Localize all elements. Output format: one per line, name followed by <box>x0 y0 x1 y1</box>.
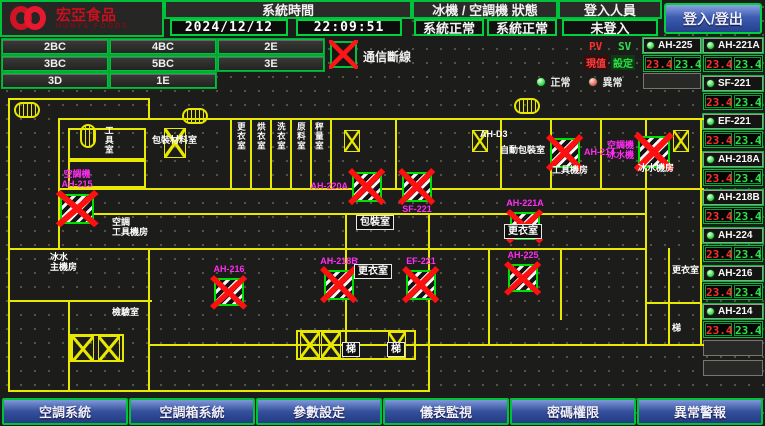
unit-pv-value: 23.4 <box>705 171 732 184</box>
room-label: 冰水機房 <box>638 164 674 174</box>
floor-button-3e[interactable]: 3E <box>218 56 324 71</box>
unit-status-led-icon <box>706 269 715 278</box>
wall-segment <box>700 118 702 346</box>
sv-header: SV <box>618 40 631 53</box>
map-unit-marker-空調機-AH-215[interactable] <box>60 194 94 224</box>
comm-fault-x-icon <box>58 192 96 225</box>
wall-segment <box>250 118 252 190</box>
floor-button-3bc[interactable]: 3BC <box>2 56 108 71</box>
comm-fault-x-icon <box>400 170 433 203</box>
unit-pv-value: 23.4 <box>645 57 672 70</box>
unit-status-led-icon <box>706 307 715 316</box>
wall-segment <box>646 302 702 304</box>
unit-pv-value: 23.4 <box>705 285 732 298</box>
bottom-navigation: 空調系統空調箱系統參數設定儀表監視密碼權限異常警報 <box>0 397 765 426</box>
wall-segment <box>148 344 704 346</box>
unit-sv-value: 23.4 <box>734 133 761 146</box>
system-time-value: 22:09:51 <box>296 19 402 36</box>
hmi-screen: 宏亞食品 HUNYA FOODS 系統時間 2024/12/12 22:09:5… <box>0 0 765 426</box>
comm-fault-x-icon <box>212 277 245 308</box>
comm-fault-legend-label: 通信斷線 <box>363 48 411 65</box>
unit-values-sf-221: 23.423.4 <box>703 93 763 110</box>
map-unit-label: SF-221 <box>388 205 446 215</box>
comm-fault-x-icon <box>506 263 539 294</box>
unit-sv-value: 23.4 <box>734 171 761 184</box>
room-label: 原料室 <box>296 122 305 151</box>
room-label: AH-D3 <box>480 130 508 140</box>
floor-button-1e[interactable]: 1E <box>110 73 216 88</box>
door-x-symbol <box>98 336 120 362</box>
unit-sv-value: 23.4 <box>734 209 761 222</box>
unit-sv-value: 23.4 <box>734 95 761 108</box>
room-label: 洗衣室 <box>276 122 285 151</box>
unit-values-ah-225: 23.423.4 <box>643 55 701 72</box>
unit-row-sf-221[interactable]: SF-221 <box>703 76 763 91</box>
normal-legend: 正常 <box>536 73 570 91</box>
wall-segment <box>8 98 10 392</box>
wall-segment <box>270 118 272 190</box>
unit-pv-value: 23.4 <box>705 95 732 108</box>
unit-sv-value: 23.4 <box>734 57 761 70</box>
room-label: 更衣室 <box>672 266 699 276</box>
unit-values-ah-218b: 23.423.4 <box>703 207 763 224</box>
unit-name-label: AH-214 <box>718 306 752 317</box>
stairs-icon <box>14 102 40 118</box>
unit-pv-value: 23.4 <box>705 57 732 70</box>
map-unit-label: AH-220A <box>310 182 348 192</box>
floor-button-5bc[interactable]: 5BC <box>110 56 216 71</box>
login-status-value: 未登入 <box>562 19 658 36</box>
floor-button-3d[interactable]: 3D <box>2 73 108 88</box>
door-x-symbol <box>344 130 360 152</box>
normal-legend-label: 正常 <box>550 78 570 89</box>
floor-plan-map: 空調機 AH-215AH-220ASF-221AH-214空調機 冰水機AH-2… <box>0 90 702 396</box>
unit-status-led-icon <box>706 193 715 202</box>
pv-name-label: 現值 <box>584 55 608 70</box>
room-label: 梯 <box>672 324 681 334</box>
wall-segment <box>230 118 232 190</box>
room-label: 包裝室 <box>356 215 394 230</box>
unit-pv-value: 23.4 <box>705 133 732 146</box>
wall-segment <box>8 300 152 302</box>
unit-row-ah-224[interactable]: AH-224 <box>703 228 763 243</box>
room-label: 更衣室 <box>236 122 245 151</box>
unit-values-ef-221: 23.423.4 <box>703 131 763 148</box>
wall-segment <box>148 248 150 392</box>
machine-status-label: 冰機 / 空調機 狀態 <box>412 0 558 19</box>
map-unit-marker-AH-218B[interactable] <box>324 270 354 300</box>
unit-name-label: AH-224 <box>718 230 752 241</box>
comm-fault-legend-icon <box>330 41 357 68</box>
map-unit-marker-AH-220A[interactable] <box>352 172 382 202</box>
unit-status-led-icon <box>646 41 655 50</box>
unit-row-ah-225[interactable]: AH-225 <box>643 38 701 53</box>
abnormal-legend-label: 異常 <box>602 78 622 89</box>
room-label: 工具機房 <box>552 166 588 176</box>
abnormal-led-icon <box>588 77 598 87</box>
map-unit-label: AH-225 <box>494 251 552 261</box>
unit-row-ah-218b[interactable]: AH-218B <box>703 190 763 205</box>
nav-button-參數設定[interactable]: 參數設定 <box>256 398 382 425</box>
unit-name-label: EF-221 <box>718 116 751 127</box>
room-label: 更衣室 <box>504 224 542 239</box>
abnormal-legend: 異常 <box>588 73 622 91</box>
nav-button-密碼權限[interactable]: 密碼權限 <box>510 398 636 425</box>
floor-button-4bc[interactable]: 4BC <box>110 39 216 54</box>
unit-row-ef-221[interactable]: EF-221 <box>703 114 763 129</box>
unit-values-ah-224: 23.423.4 <box>703 245 763 262</box>
map-unit-label: 空調機 AH-215 <box>46 170 108 190</box>
unit-values-ah-216: 23.423.4 <box>703 283 763 300</box>
stairs-icon <box>80 124 96 148</box>
room-label: 烘衣室 <box>256 122 265 151</box>
wall-segment <box>58 118 704 120</box>
unit-sv-value: 23.4 <box>734 323 761 336</box>
unit-status-led-icon <box>706 41 715 50</box>
unit-name-label: AH-218A <box>718 154 760 165</box>
map-unit-label: AH-221A <box>496 199 554 209</box>
room-label: 冰水 主機房 <box>50 253 77 273</box>
nav-button-異常警報[interactable]: 異常警報 <box>637 398 763 425</box>
unit-status-led-icon <box>706 79 715 88</box>
comm-fault-x-icon <box>350 170 383 203</box>
wall-segment <box>148 98 150 120</box>
unit-values-ah-218a: 23.423.4 <box>703 169 763 186</box>
stairs-icon <box>182 108 208 124</box>
door-x-symbol <box>300 332 320 358</box>
map-unit-marker-EF-221[interactable] <box>406 270 436 300</box>
unit-sv-value: 23.4 <box>734 285 761 298</box>
wall-segment <box>8 248 647 250</box>
unit-row-ah-221a[interactable]: AH-221A <box>703 38 763 53</box>
door-x-symbol <box>673 130 689 152</box>
unit-status-led-icon <box>706 117 715 126</box>
normal-led-icon <box>536 77 546 87</box>
unit-row-ah-218a[interactable]: AH-218A <box>703 152 763 167</box>
logo: 宏亞食品 HUNYA FOODS <box>0 0 164 37</box>
room-label: 梯 <box>387 342 405 357</box>
floor-button-2e[interactable]: 2E <box>218 39 324 54</box>
unit-name-label: SF-221 <box>718 78 751 89</box>
wall-segment <box>488 248 490 346</box>
map-unit-label: AH-216 <box>200 265 258 275</box>
wall-segment <box>668 248 670 346</box>
wall-segment <box>310 118 312 190</box>
map-unit-marker-SF-221[interactable] <box>402 172 432 202</box>
room-label: 更衣室 <box>354 264 392 279</box>
door-x-symbol <box>72 336 94 362</box>
wall-segment <box>290 118 292 190</box>
room-label: 檢驗室 <box>112 308 139 318</box>
wall-segment <box>8 390 430 392</box>
nav-button-儀表監視[interactable]: 儀表監視 <box>383 398 509 425</box>
unit-name-label: AH-225 <box>658 40 692 51</box>
unit-pv-value: 23.4 <box>705 209 732 222</box>
unit-name-label: AH-218B <box>718 192 760 203</box>
login-logout-button[interactable]: 登入/登出 <box>664 3 762 34</box>
login-user-label: 登入人員 <box>558 0 662 19</box>
unit-pv-value: 23.4 <box>705 323 732 336</box>
room-label: 空調 工具機房 <box>112 218 148 238</box>
system-time-label: 系統時間 <box>164 0 412 19</box>
nav-button-空調系統[interactable]: 空調系統 <box>2 398 128 425</box>
wall-segment <box>330 118 332 190</box>
comm-fault-x-icon <box>322 268 355 301</box>
map-unit-label: EF-221 <box>392 257 450 267</box>
wall-segment <box>395 118 397 190</box>
room-label: 工具室 <box>104 126 113 155</box>
map-unit-marker-AH-214[interactable] <box>550 138 580 168</box>
room-label: 秤量室 <box>314 122 323 151</box>
floor-button-2bc[interactable]: 2BC <box>2 39 108 54</box>
unit-empty-slot <box>703 360 763 376</box>
map-unit-marker-AH-216[interactable] <box>214 278 244 306</box>
unit-row-ah-214[interactable]: AH-214 <box>703 304 763 319</box>
stairs-icon <box>514 98 540 114</box>
wall-segment <box>428 344 430 392</box>
sv-name-label: 設定 <box>611 55 635 70</box>
pv-header: PV <box>589 40 602 53</box>
room-label: 包裝材料室 <box>152 136 197 146</box>
door-x-symbol <box>321 332 341 358</box>
unit-values-ah-214: 23.423.4 <box>703 321 763 338</box>
ac-status-value: 系統正常 <box>487 19 557 36</box>
chiller-status-value: 系統正常 <box>414 19 484 36</box>
unit-empty-slot <box>703 340 763 356</box>
map-unit-label: 空調機 冰水機 <box>607 141 634 161</box>
nav-button-空調箱系統[interactable]: 空調箱系統 <box>129 398 255 425</box>
unit-status-led-icon <box>706 155 715 164</box>
floor-selector: 2BC4BC2E3BC5BC3E3D1E <box>2 39 332 88</box>
unit-status-led-icon <box>706 231 715 240</box>
wall-segment <box>560 248 562 320</box>
room-label: 自動包裝室 <box>500 146 545 156</box>
unit-row-ah-216[interactable]: AH-216 <box>703 266 763 281</box>
company-name: 宏亞食品 <box>56 8 129 23</box>
comm-fault-x-icon <box>404 268 437 301</box>
room-label: 梯 <box>342 342 360 357</box>
unit-empty-slot <box>643 73 701 89</box>
unit-sv-value: 23.4 <box>734 247 761 260</box>
unit-pv-value: 23.4 <box>705 247 732 260</box>
unit-values-ah-221a: 23.423.4 <box>703 55 763 72</box>
wall-segment <box>8 98 150 100</box>
unit-name-label: AH-216 <box>718 268 752 279</box>
system-date-value: 2024/12/12 <box>170 19 288 36</box>
company-name-en: HUNYA FOODS <box>56 23 129 30</box>
unit-sv-value: 23.4 <box>674 57 701 70</box>
unit-name-label: AH-221A <box>718 40 760 51</box>
company-logo-icon <box>10 5 50 33</box>
map-unit-marker-AH-225[interactable] <box>508 264 538 292</box>
